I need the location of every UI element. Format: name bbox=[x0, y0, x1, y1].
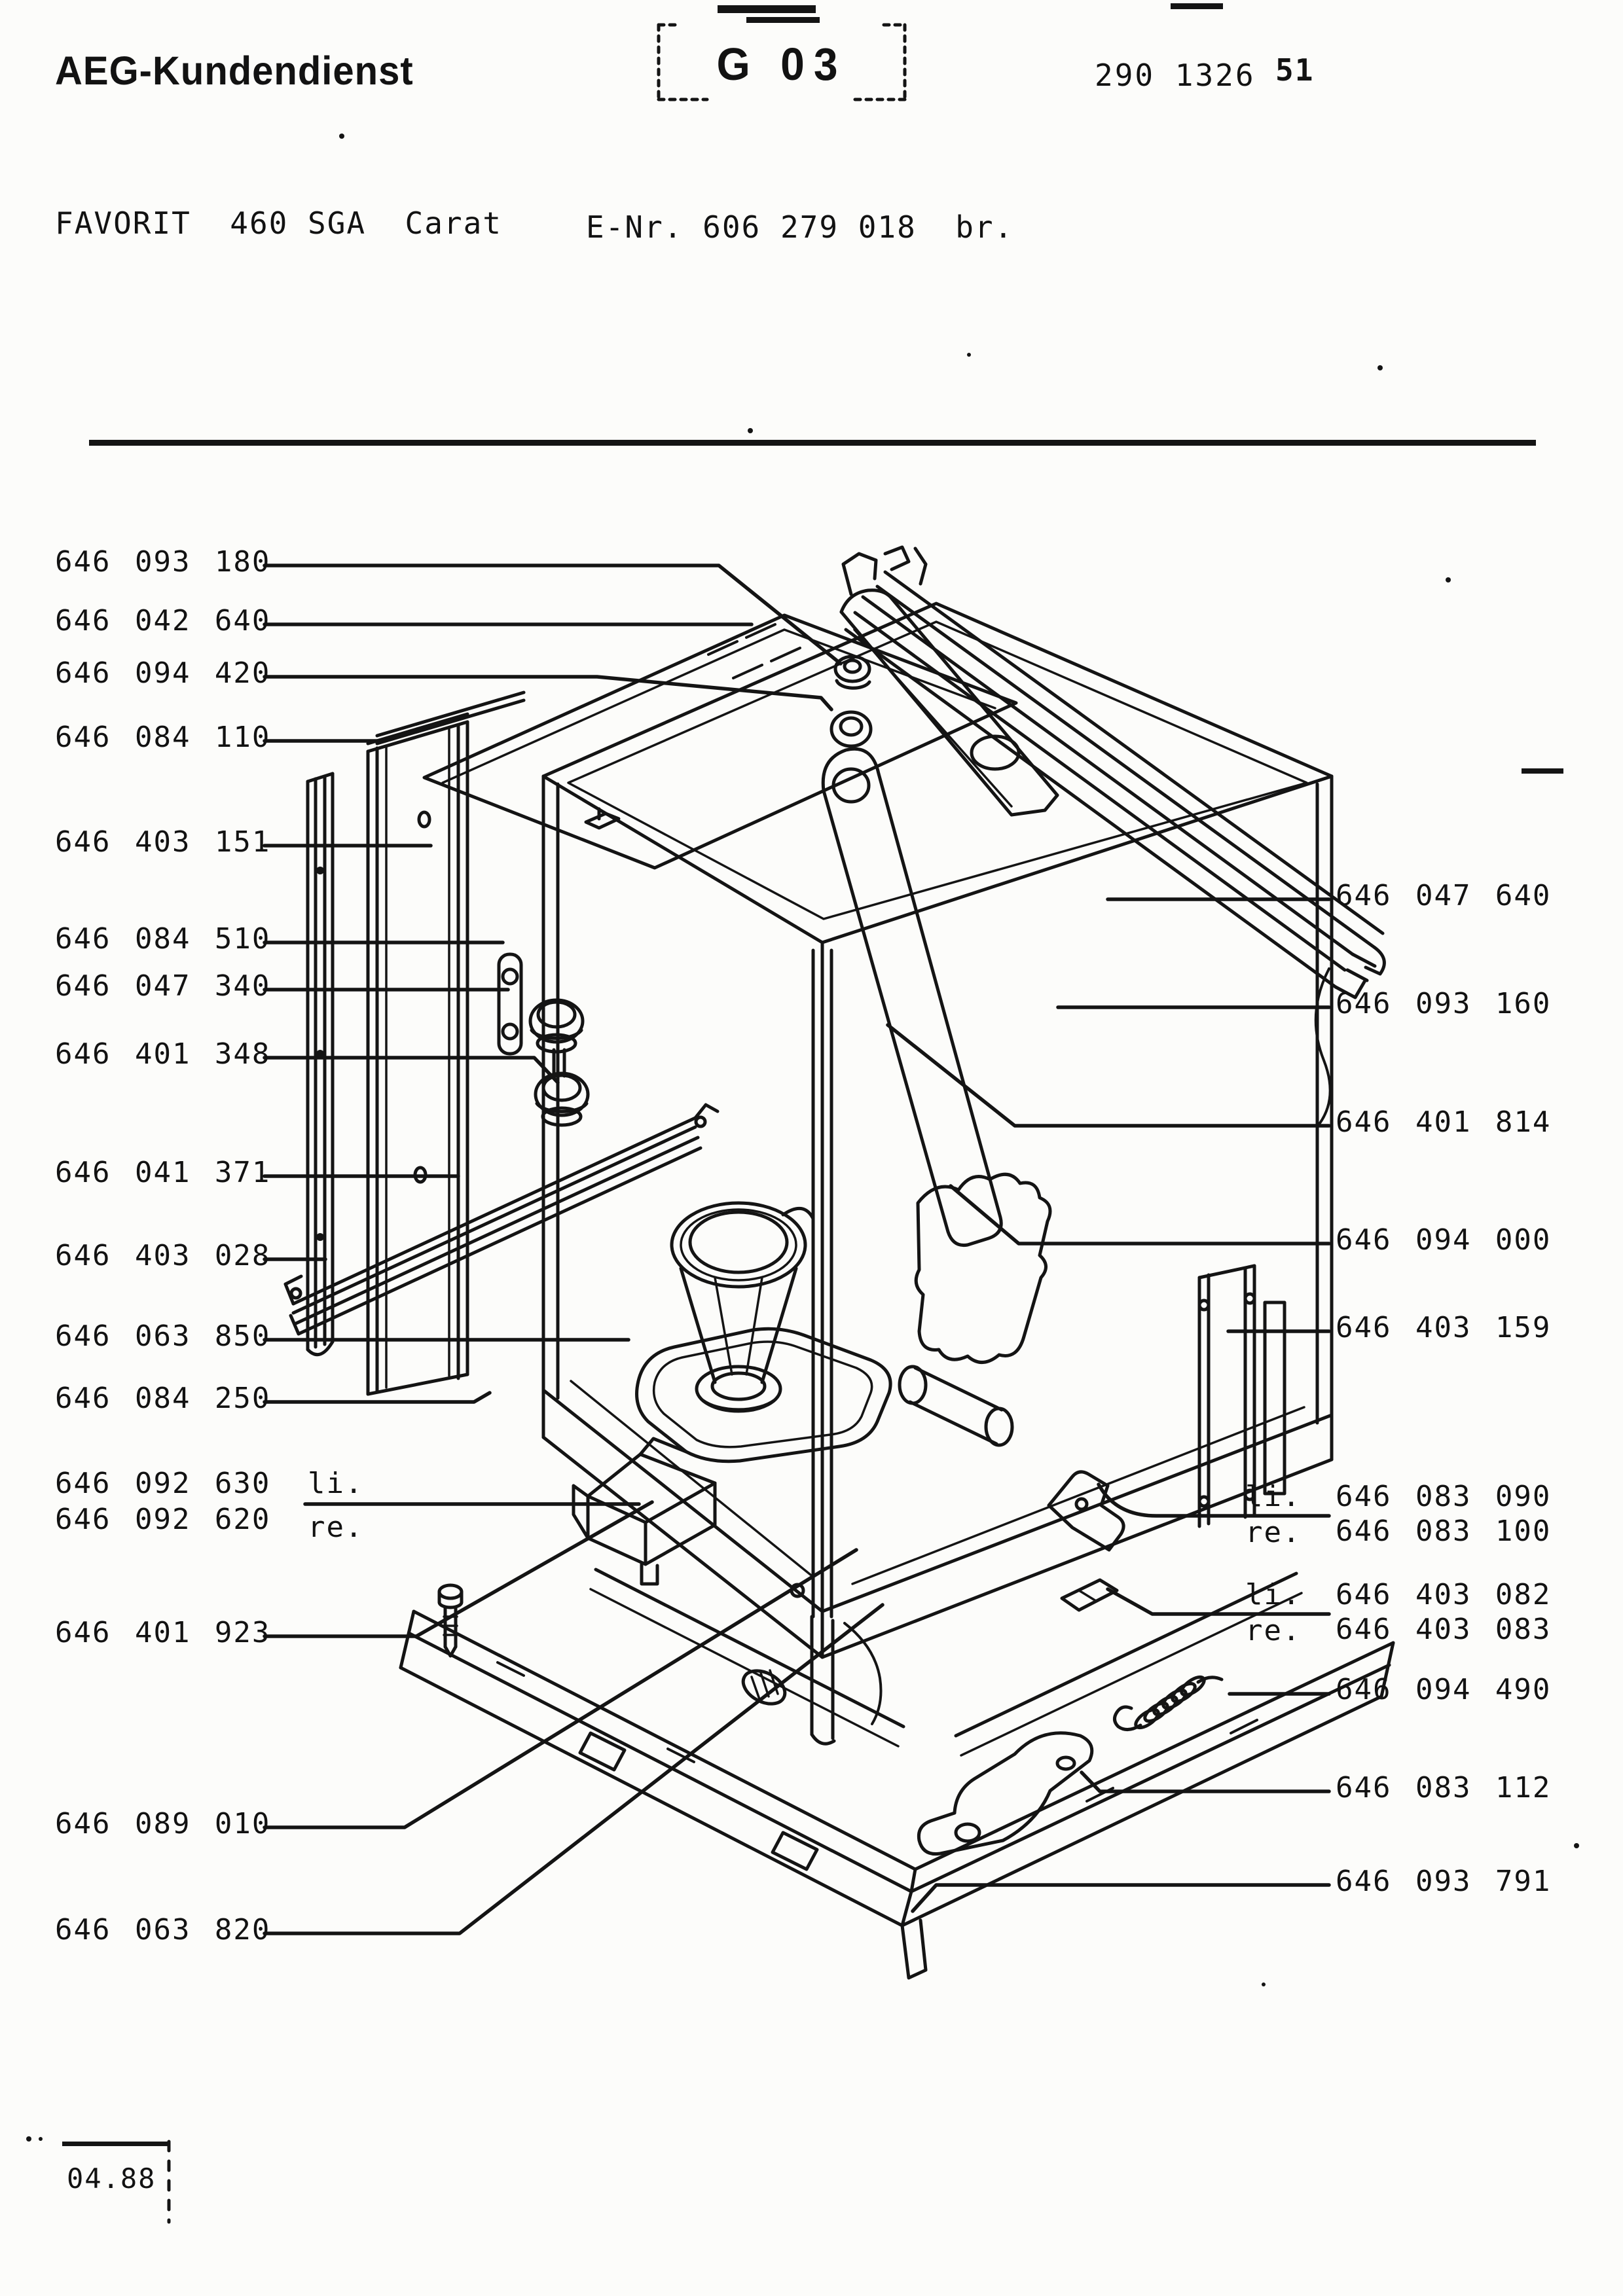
part-label: 646 083 090 bbox=[1336, 1482, 1551, 1511]
part-label: 646 401 348 bbox=[55, 1040, 270, 1069]
model-name: FAVORIT 460 SGA Carat bbox=[55, 208, 502, 238]
side-prefix-right: re. bbox=[1245, 1518, 1301, 1547]
side-prefix-right: re. bbox=[1245, 1617, 1301, 1645]
part-label: 646 047 640 bbox=[1336, 882, 1551, 910]
rack-rail bbox=[285, 1105, 718, 1334]
part-label: 646 084 250 bbox=[55, 1384, 270, 1413]
exploded-diagram bbox=[0, 0, 1623, 2296]
part-label: 646 042 640 bbox=[55, 607, 270, 636]
part-label: 646 403 159 bbox=[1336, 1314, 1551, 1342]
base-frame bbox=[401, 1570, 1393, 1978]
part-label: 646 093 180 bbox=[55, 548, 270, 577]
service-sheet-page: AEG-Kundendienst G 03 290 1326 51 FAVORI… bbox=[0, 0, 1623, 2296]
revision-date: 04.88 bbox=[67, 2165, 156, 2193]
part-label: 646 093 160 bbox=[1336, 990, 1551, 1018]
part-label: 646 094 420 bbox=[55, 659, 270, 688]
part-label: 646 083 100 bbox=[1336, 1517, 1551, 1546]
insulation-mat bbox=[900, 1174, 1050, 1445]
door-outer-frame bbox=[308, 774, 333, 1355]
part-label: 646 084 510 bbox=[55, 925, 270, 954]
section-code: G 03 bbox=[716, 38, 847, 90]
side-prefix-left: re. bbox=[308, 1513, 363, 1542]
leader-lines-left bbox=[264, 565, 883, 1933]
part-label: 646 041 371 bbox=[55, 1158, 270, 1187]
header-divider bbox=[89, 440, 1536, 446]
part-label: 646 094 000 bbox=[1336, 1226, 1551, 1255]
side-prefix-left: li. bbox=[308, 1469, 363, 1498]
section-code-box: G 03 bbox=[653, 26, 910, 102]
top-mounting-rail bbox=[843, 547, 1384, 997]
part-label: 646 089 010 bbox=[55, 1810, 270, 1839]
part-label: 646 092 630 bbox=[55, 1469, 270, 1498]
hinge-plate bbox=[499, 954, 521, 1054]
tub-body bbox=[543, 603, 1332, 1657]
part-label: 646 094 490 bbox=[1336, 1676, 1551, 1704]
part-label: 646 047 340 bbox=[55, 972, 270, 1001]
part-label: 646 403 151 bbox=[55, 828, 270, 857]
latch-lever bbox=[919, 1733, 1091, 1854]
e-number: E-Nr. 606 279 018 br. bbox=[586, 212, 1013, 242]
filter-funnel bbox=[672, 1203, 813, 1411]
lid-panel bbox=[424, 615, 1019, 868]
part-label: 646 084 110 bbox=[55, 723, 270, 752]
part-label: 646 401 923 bbox=[55, 1619, 270, 1647]
document-number: 290 1326 bbox=[1095, 60, 1256, 90]
part-label: 646 083 112 bbox=[1336, 1774, 1551, 1803]
part-label: 646 063 850 bbox=[55, 1322, 270, 1351]
tension-spring bbox=[1114, 1674, 1222, 1731]
brand-title: AEG-Kundendienst bbox=[55, 52, 414, 92]
sheet-number: 51 bbox=[1275, 55, 1314, 85]
part-label: 646 092 620 bbox=[55, 1505, 270, 1534]
side-prefix-right: li. bbox=[1245, 1482, 1301, 1511]
part-label: 646 403 028 bbox=[55, 1242, 270, 1270]
part-label: 646 063 820 bbox=[55, 1916, 270, 1945]
part-label: 646 401 814 bbox=[1336, 1108, 1551, 1137]
door-guide bbox=[1062, 1580, 1117, 1610]
part-label: 646 403 082 bbox=[1336, 1581, 1551, 1609]
side-prefix-right: li. bbox=[1245, 1581, 1301, 1609]
sump-basin bbox=[637, 1329, 891, 1462]
part-label: 646 403 083 bbox=[1336, 1615, 1551, 1644]
part-label: 646 093 791 bbox=[1336, 1867, 1551, 1896]
